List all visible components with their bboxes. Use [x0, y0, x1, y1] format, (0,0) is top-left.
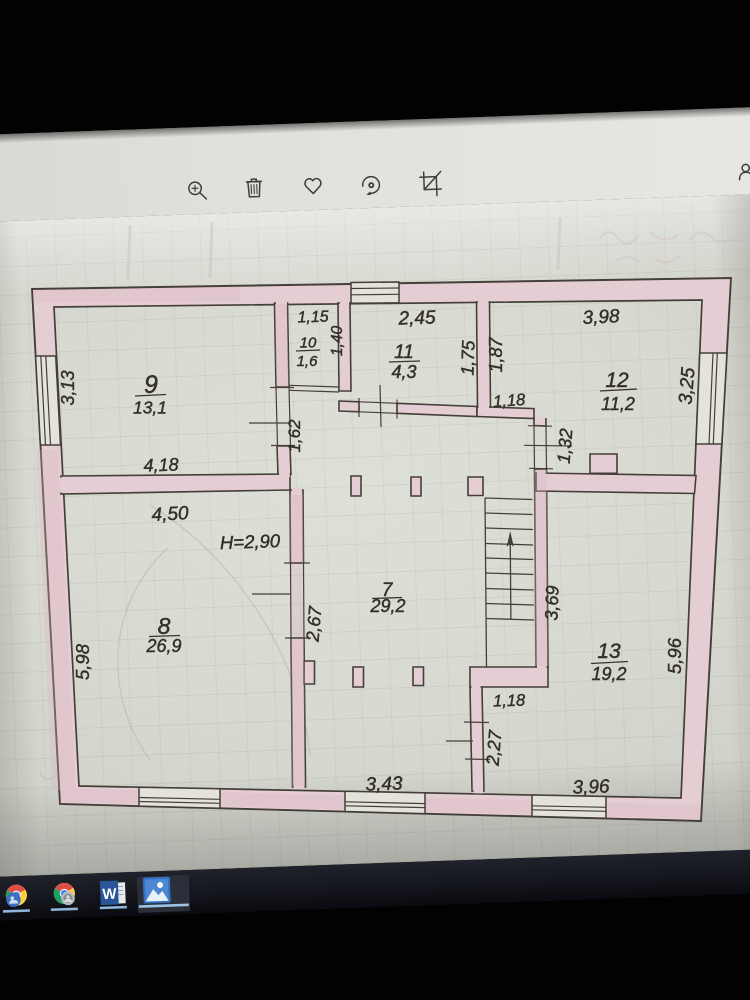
svg-text:1,87: 1,87: [486, 337, 506, 373]
svg-text:11,2: 11,2: [601, 394, 635, 414]
svg-text:3,96: 3,96: [572, 776, 610, 798]
svg-text:H=2,90: H=2,90: [220, 530, 282, 553]
svg-text:1,6: 1,6: [297, 353, 319, 370]
svg-text:3,98: 3,98: [582, 306, 620, 329]
svg-text:3,43: 3,43: [365, 773, 403, 795]
svg-text:5,96: 5,96: [664, 637, 685, 674]
svg-text:19,2: 19,2: [591, 664, 626, 684]
svg-text:3,69: 3,69: [541, 585, 562, 621]
svg-text:11: 11: [394, 342, 414, 363]
svg-text:3,13: 3,13: [58, 370, 78, 405]
svg-text:1,32: 1,32: [554, 428, 577, 465]
svg-text:1,18: 1,18: [493, 691, 527, 710]
svg-text:1,75: 1,75: [457, 339, 478, 376]
svg-text:2,45: 2,45: [397, 307, 436, 329]
svg-text:4,3: 4,3: [391, 362, 416, 382]
svg-text:12: 12: [605, 369, 629, 392]
svg-text:2,27: 2,27: [482, 729, 505, 768]
svg-text:4,50: 4,50: [151, 503, 189, 526]
svg-text:1,62: 1,62: [285, 419, 304, 453]
svg-text:3,25: 3,25: [675, 366, 699, 405]
svg-text:13: 13: [597, 640, 621, 663]
svg-text:5,98: 5,98: [72, 643, 93, 680]
svg-text:2,67: 2,67: [302, 605, 325, 644]
svg-text:13,1: 13,1: [133, 398, 167, 418]
svg-text:4,18: 4,18: [143, 454, 179, 475]
svg-text:10: 10: [300, 335, 317, 352]
svg-text:1,15: 1,15: [297, 308, 329, 326]
svg-text:1,40: 1,40: [329, 326, 346, 357]
svg-text:1,18: 1,18: [492, 391, 526, 411]
svg-text:26,9: 26,9: [145, 636, 181, 656]
